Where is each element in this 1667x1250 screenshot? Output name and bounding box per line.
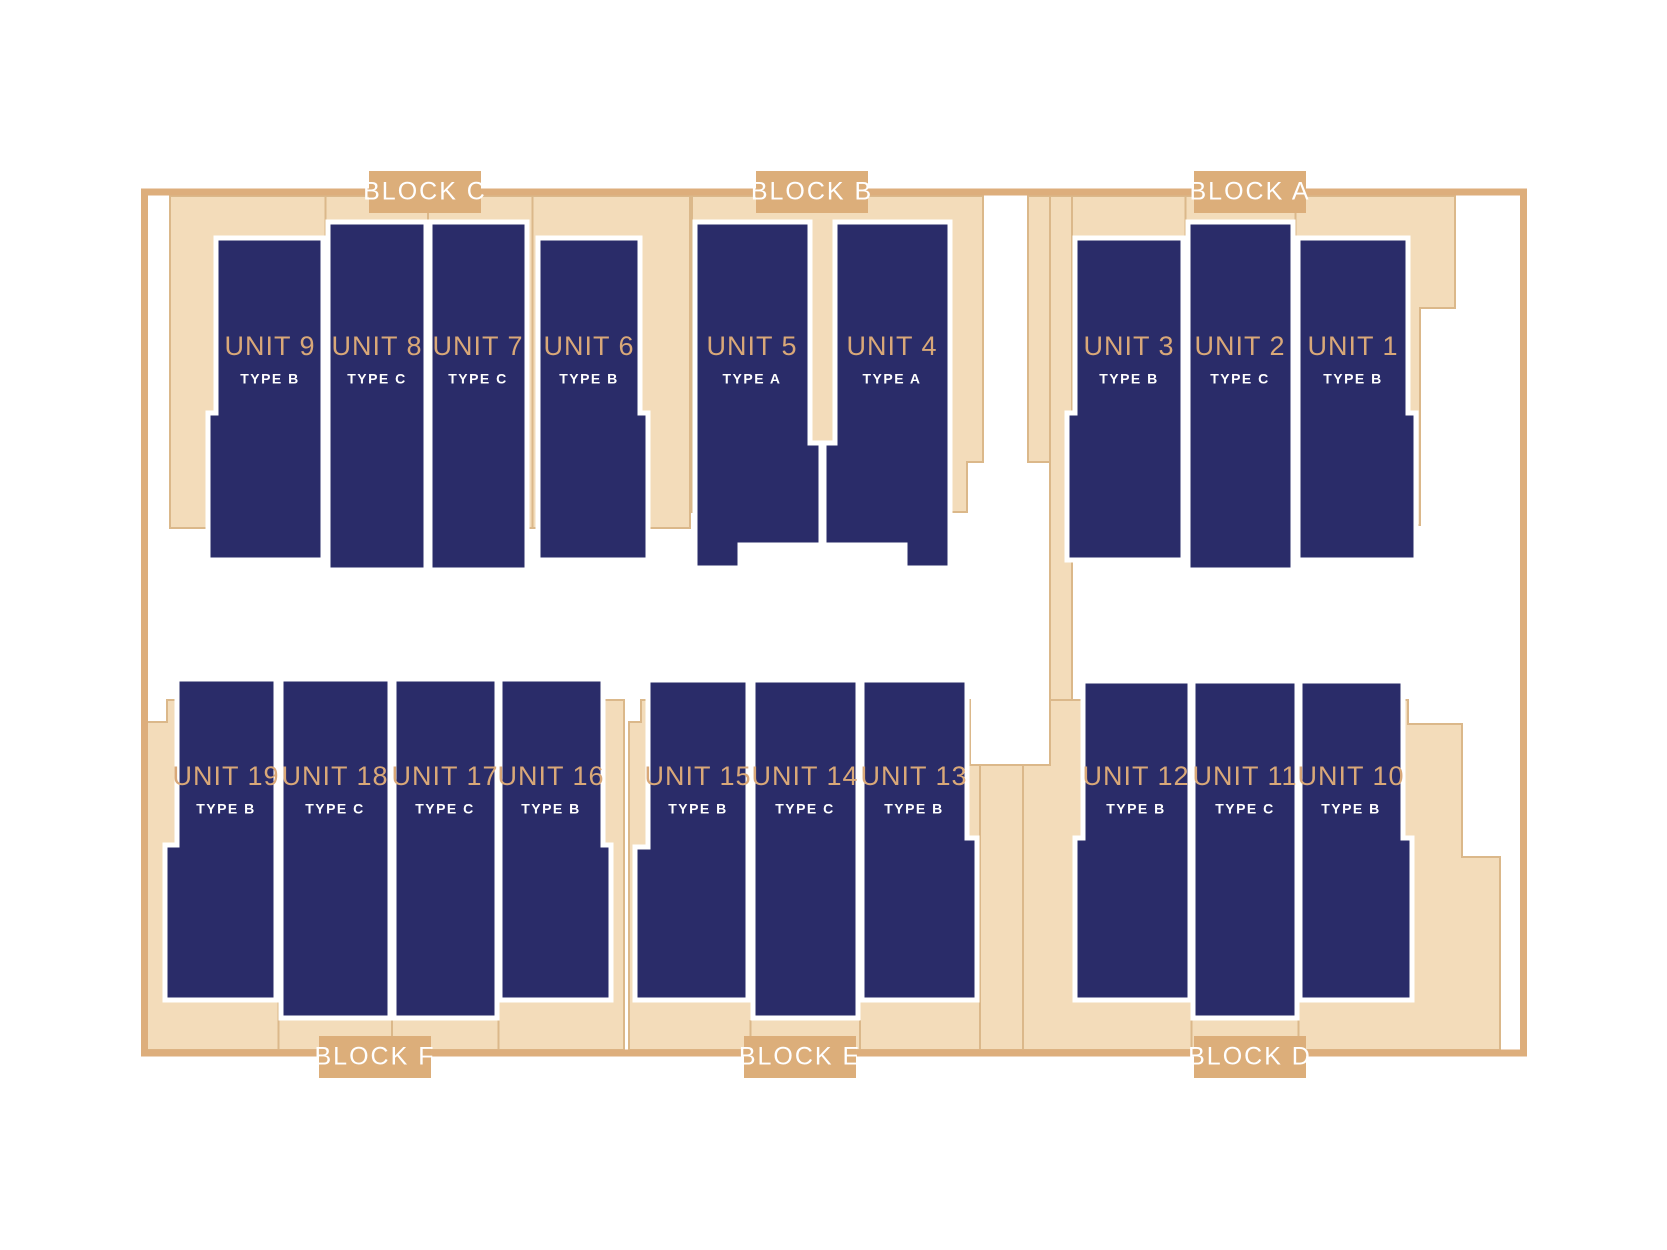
unit-15[interactable]: UNIT 15 TYPE B: [635, 680, 752, 1000]
unit-10-name: UNIT 10: [1297, 761, 1404, 791]
unit-2-name: UNIT 2: [1194, 331, 1285, 361]
unit-19-name: UNIT 19: [172, 761, 279, 791]
block-label-c-text: BLOCK C: [363, 178, 487, 206]
unit-6-name: UNIT 6: [543, 331, 634, 361]
unit-9-type: TYPE B: [240, 371, 300, 387]
unit-3[interactable]: UNIT 3 TYPE B: [1067, 238, 1183, 560]
block-label-a: BLOCK A: [1190, 171, 1311, 213]
unit-17-name: UNIT 17: [391, 761, 498, 791]
unit-13-type: TYPE B: [884, 801, 944, 817]
unit-7-name: UNIT 7: [432, 331, 523, 361]
unit-18[interactable]: UNIT 18 TYPE C: [281, 679, 390, 1018]
unit-17-type: TYPE C: [415, 801, 475, 817]
block-label-d-text: BLOCK D: [1188, 1043, 1312, 1071]
unit-8-shape[interactable]: [328, 222, 426, 570]
unit-13[interactable]: UNIT 13 TYPE B: [860, 680, 977, 1000]
unit-8-type: TYPE C: [347, 371, 407, 387]
unit-16-type: TYPE B: [521, 801, 581, 817]
unit-8-name: UNIT 8: [331, 331, 422, 361]
block-label-f-text: BLOCK F: [315, 1043, 436, 1071]
unit-7[interactable]: UNIT 7 TYPE C: [430, 222, 527, 570]
unit-3-shape[interactable]: [1067, 238, 1183, 560]
block-label-d: BLOCK D: [1188, 1036, 1312, 1078]
unit-1-type: TYPE B: [1323, 371, 1383, 387]
unit-17-shape[interactable]: [394, 679, 497, 1018]
unit-3-type: TYPE B: [1099, 371, 1159, 387]
unit-15-type: TYPE B: [668, 801, 728, 817]
unit-16-shape[interactable]: [500, 679, 611, 1000]
unit-14-shape[interactable]: [753, 680, 858, 1018]
unit-19-shape[interactable]: [165, 679, 276, 1000]
unit-19-type: TYPE B: [196, 801, 256, 817]
unit-18-name: UNIT 18: [281, 761, 388, 791]
unit-11-type: TYPE C: [1215, 801, 1275, 817]
unit-1-shape[interactable]: [1298, 238, 1416, 560]
unit-17[interactable]: UNIT 17 TYPE C: [391, 679, 498, 1018]
unit-16[interactable]: UNIT 16 TYPE B: [497, 679, 611, 1000]
unit-9-shape[interactable]: [208, 238, 323, 560]
unit-11-shape[interactable]: [1193, 681, 1297, 1018]
unit-12[interactable]: UNIT 12 TYPE B: [1075, 681, 1190, 1000]
unit-8[interactable]: UNIT 8 TYPE C: [328, 222, 426, 570]
block-label-e: BLOCK E: [739, 1036, 861, 1078]
unit-5[interactable]: UNIT 5 TYPE A: [695, 222, 821, 568]
unit-3-name: UNIT 3: [1083, 331, 1174, 361]
unit-18-type: TYPE C: [305, 801, 365, 817]
unit-9[interactable]: UNIT 9 TYPE B: [208, 238, 323, 560]
unit-5-name: UNIT 5: [706, 331, 797, 361]
block-label-b: BLOCK B: [751, 171, 873, 213]
unit-6-shape[interactable]: [538, 238, 648, 560]
unit-9-name: UNIT 9: [224, 331, 315, 361]
block-label-f: BLOCK F: [315, 1036, 436, 1078]
unit-2-type: TYPE C: [1210, 371, 1270, 387]
unit-1-name: UNIT 1: [1307, 331, 1398, 361]
unit-11-name: UNIT 11: [1192, 761, 1297, 791]
unit-7-shape[interactable]: [430, 222, 527, 570]
block-label-a-text: BLOCK A: [1190, 178, 1311, 206]
unit-13-name: UNIT 13: [860, 761, 967, 791]
unit-14-type: TYPE C: [775, 801, 835, 817]
site-plan-page: UNIT 9 TYPE B UNIT 8 TYPE C UNIT 7 TYPE …: [0, 0, 1667, 1250]
unit-13-shape[interactable]: [862, 680, 977, 1000]
unit-10[interactable]: UNIT 10 TYPE B: [1297, 681, 1412, 1000]
unit-15-shape[interactable]: [635, 680, 748, 1000]
unit-4-type: TYPE A: [862, 371, 921, 387]
unit-4-name: UNIT 4: [846, 331, 937, 361]
unit-15-name: UNIT 15: [644, 761, 751, 791]
unit-19[interactable]: UNIT 19 TYPE B: [165, 679, 280, 1000]
unit-2[interactable]: UNIT 2 TYPE C: [1188, 222, 1293, 570]
block-label-b-text: BLOCK B: [751, 178, 873, 206]
unit-6-type: TYPE B: [559, 371, 619, 387]
unit-7-type: TYPE C: [448, 371, 508, 387]
unit-14-name: UNIT 14: [751, 761, 858, 791]
site-plan: UNIT 9 TYPE B UNIT 8 TYPE C UNIT 7 TYPE …: [0, 0, 1667, 1250]
unit-11[interactable]: UNIT 11 TYPE C: [1192, 681, 1297, 1018]
unit-12-shape[interactable]: [1075, 681, 1190, 1000]
block-label-e-text: BLOCK E: [739, 1043, 861, 1071]
unit-2-shape[interactable]: [1188, 222, 1293, 570]
unit-12-type: TYPE B: [1106, 801, 1166, 817]
unit-10-shape[interactable]: [1300, 681, 1412, 1000]
unit-16-name: UNIT 16: [497, 761, 604, 791]
unit-12-name: UNIT 12: [1082, 761, 1189, 791]
unit-5-type: TYPE A: [722, 371, 781, 387]
unit-4-shape[interactable]: [824, 222, 950, 568]
unit-14[interactable]: UNIT 14 TYPE C: [751, 680, 858, 1018]
block-label-c: BLOCK C: [363, 171, 487, 213]
unit-1[interactable]: UNIT 1 TYPE B: [1298, 238, 1416, 560]
unit-18-shape[interactable]: [281, 679, 390, 1018]
unit-6[interactable]: UNIT 6 TYPE B: [538, 238, 648, 560]
unit-4[interactable]: UNIT 4 TYPE A: [824, 222, 950, 568]
unit-5-shape[interactable]: [695, 222, 821, 568]
unit-10-type: TYPE B: [1321, 801, 1381, 817]
